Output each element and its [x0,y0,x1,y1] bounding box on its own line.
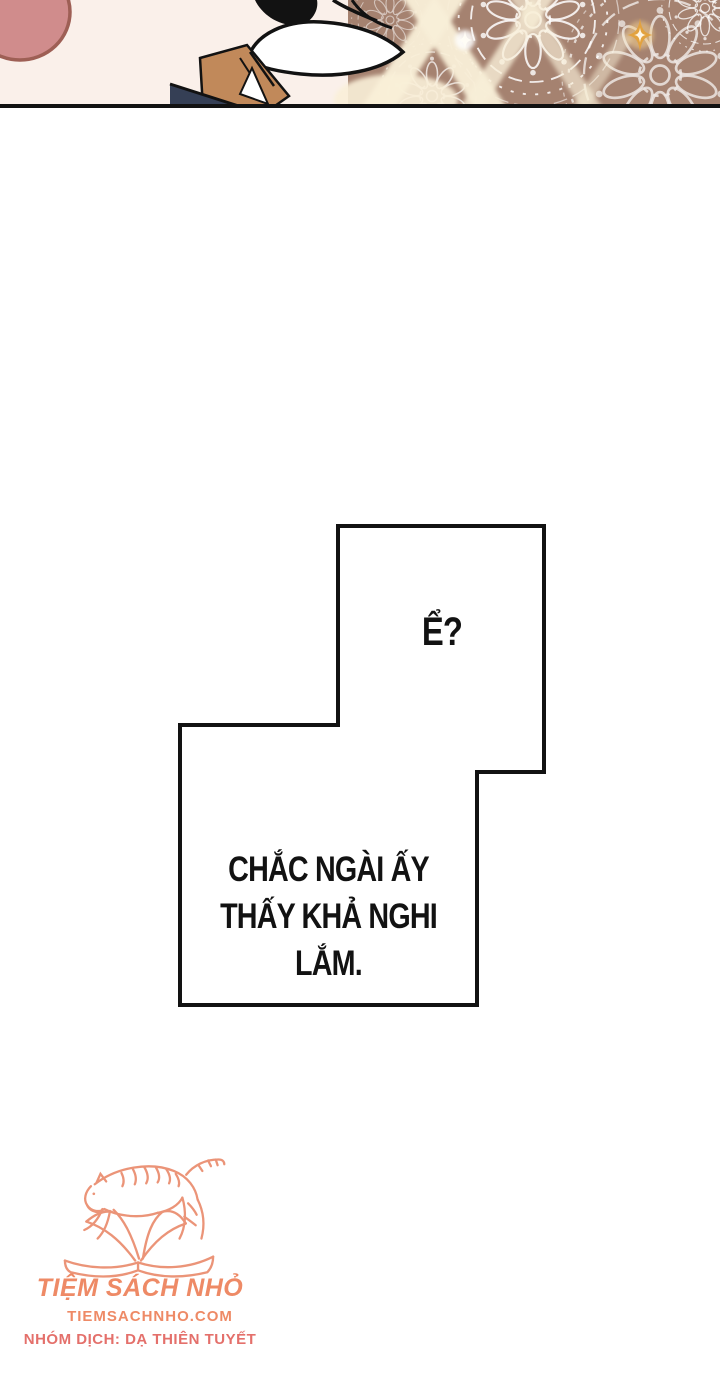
bubble-bottom-line-2: THẤY KHẢ NGHI [208,893,448,940]
bubble-bottom-text: CHẮC NGÀI ẤY THẤY KHẢ NGHI LẮM. [208,846,448,987]
bubble-bottom-line-1: CHẮC NGÀI ẤY [208,846,448,893]
panel-bottom-border [0,104,720,108]
watermark-title: TIỆM SÁCH NHỎ [20,1274,260,1303]
comic-panel [0,0,720,108]
open-book-icon [50,1204,230,1282]
bubble-top-text: Ể? [358,604,525,660]
bubble-bottom-line-3: LẮM. [208,940,448,987]
comic-panel-art [0,0,720,108]
small-sparkle-icon [455,30,475,50]
watermark-website: TIEMSACHNHO.COM [30,1308,270,1325]
watermark-team: NHÓM DỊCH: DẠ THIÊN TUYẾT [20,1331,260,1348]
